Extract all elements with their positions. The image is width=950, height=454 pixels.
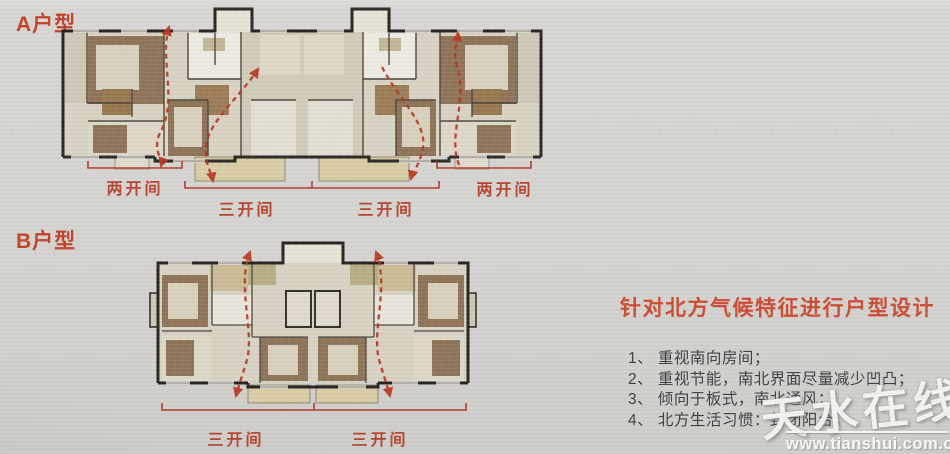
- bay-label: 三开间: [351, 430, 408, 449]
- design-notes-panel: 针对北方气候特征进行户型设计 1、 重视南向房间； 2、 重视节能，南北界面尽量…: [620, 292, 950, 431]
- bay-label: 两开间: [476, 180, 533, 199]
- design-notes-list: 1、 重视南向房间； 2、 重视节能，南北界面尽量减少凹凸； 3、 倾向于板式，…: [620, 349, 950, 431]
- design-note-item: 4、 北方生活习惯：封闭阳台。: [628, 411, 950, 432]
- plan-b-title: B户型: [16, 225, 76, 255]
- plan-a-floorplan: 两开间 三开间 三开间 两开间: [55, 5, 555, 235]
- watermark-url: www.tianshui.com.cn: [786, 435, 950, 454]
- bay-label: 三开间: [207, 430, 264, 449]
- slide-photo: A户型: [0, 0, 950, 454]
- design-note-item: 2、 重视节能，南北界面尽量减少凹凸；: [628, 370, 950, 391]
- design-note-item: 1、 重视南向房间；: [628, 349, 950, 370]
- design-note-item: 3、 倾向于板式，南北通风；: [628, 390, 950, 411]
- plan-b-floorplan: 三开间 三开间: [148, 233, 478, 454]
- bay-label: 两开间: [106, 179, 163, 198]
- bay-label: 三开间: [357, 200, 414, 219]
- bay-label: 三开间: [218, 200, 275, 219]
- dimension-brackets-b: [162, 403, 466, 410]
- design-notes-heading: 针对北方气候特征进行户型设计: [620, 292, 950, 322]
- watermark-divider: [786, 431, 948, 433]
